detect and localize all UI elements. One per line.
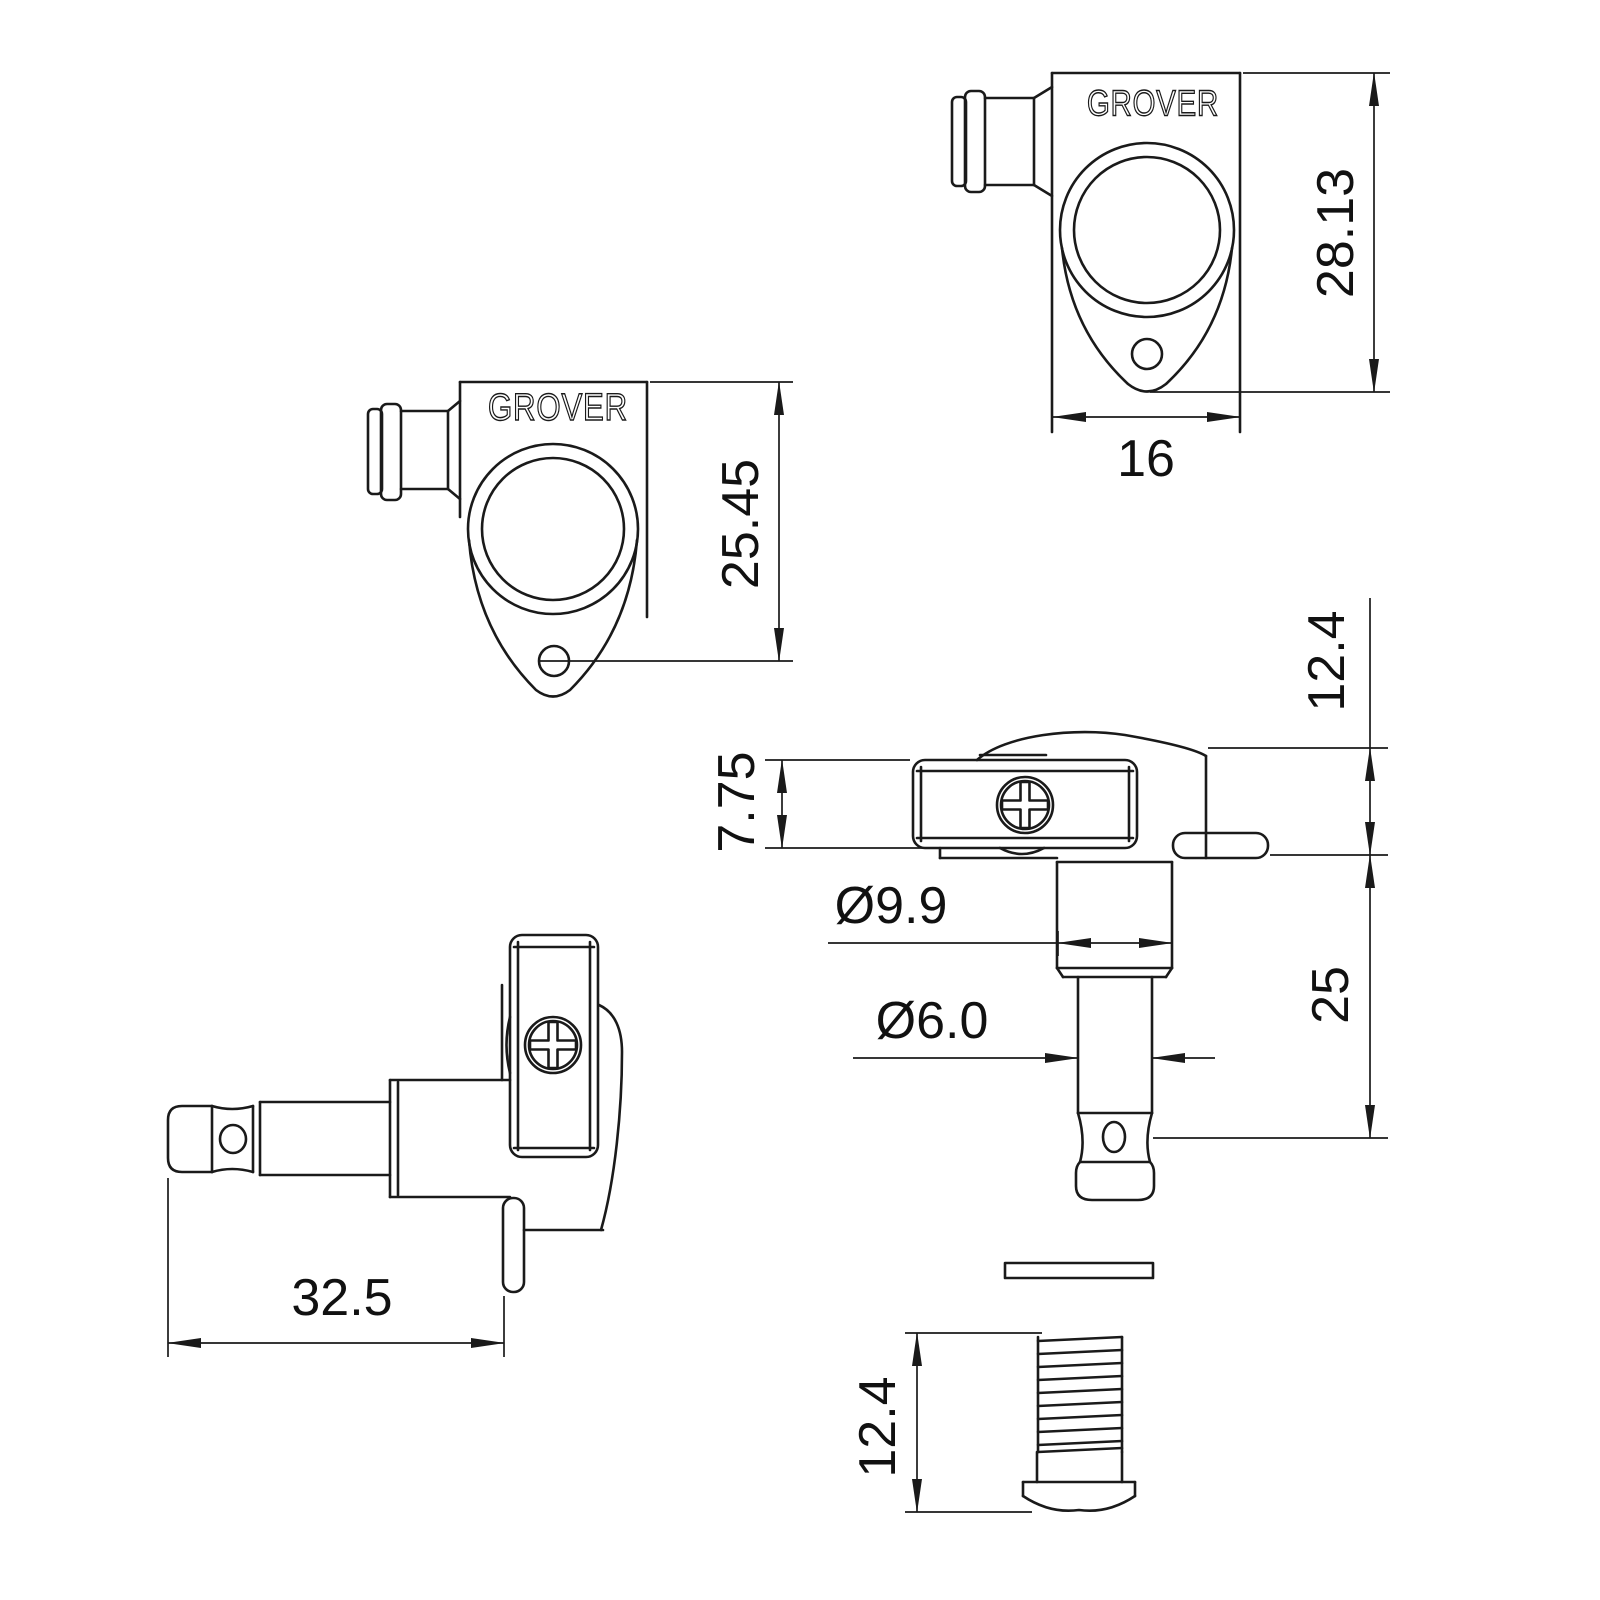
phillips-screw-icon xyxy=(997,777,1053,833)
dim-bushing-height: 12.4 xyxy=(849,1333,1042,1512)
dim-label-height-to-hole: 25.45 xyxy=(712,459,770,589)
dim-label-post-length: 25 xyxy=(1302,966,1360,1024)
technical-drawing-page: GROVER 28.13 16 xyxy=(0,0,1600,1600)
string-hole xyxy=(220,1125,246,1153)
grommet-inner-circle xyxy=(482,458,624,600)
mounting-tab xyxy=(1173,833,1268,858)
dim-housing-height: 12.4 xyxy=(1208,598,1388,855)
housing-side-plate xyxy=(913,760,1137,848)
housing-side-plate xyxy=(510,935,598,1157)
dim-label-post-diameter: Ø6.0 xyxy=(876,992,989,1050)
dim-label-shaft-diameter: Ø9.9 xyxy=(835,877,948,935)
view-side-bottom-left: 32.5 xyxy=(168,935,622,1357)
grommet-outer-circle xyxy=(468,444,638,614)
grover-logo-text: GROVER xyxy=(488,387,628,429)
dim-label-bushing-height: 12.4 xyxy=(849,1376,907,1477)
dim-label-front-width: 16 xyxy=(1117,430,1175,488)
grover-logo-text: GROVER xyxy=(1087,83,1219,124)
dim-label-overall-length: 32.5 xyxy=(291,1269,392,1327)
dim-plate-thickness: 7.75 xyxy=(708,751,935,852)
washer xyxy=(1005,1263,1153,1278)
dim-shaft-diameter: Ø9.9 xyxy=(828,877,1172,956)
string-post-stub xyxy=(368,401,460,500)
view-front-top-right: GROVER 28.13 16 xyxy=(952,73,1390,488)
grommet-inner-circle xyxy=(1074,157,1220,303)
string-post xyxy=(168,1080,510,1197)
dim-front-width: 16 xyxy=(1053,417,1240,488)
tuner-dimension-drawing: GROVER 28.13 16 xyxy=(0,0,1600,1600)
string-post xyxy=(1057,862,1172,1200)
grommet-outer-circle xyxy=(1060,143,1234,317)
phillips-screw-icon xyxy=(525,1017,581,1073)
bushing-flange xyxy=(1023,1452,1135,1511)
dim-label-housing-height: 12.4 xyxy=(1298,610,1356,711)
teardrop-flange xyxy=(469,540,637,697)
view-front-left: GROVER 25.45 xyxy=(368,382,793,697)
dim-post-diameter: Ø6.0 xyxy=(853,992,1215,1058)
dim-label-front-height: 28.13 xyxy=(1307,168,1365,298)
view-side-right: 7.75 Ø9.9 Ø6.0 12.4 25 xyxy=(708,598,1388,1200)
housing-body xyxy=(1052,73,1240,432)
screw-hole xyxy=(1132,339,1162,369)
string-hole xyxy=(1103,1122,1125,1152)
string-post-stub xyxy=(952,87,1052,196)
bushing-threads xyxy=(1038,1337,1122,1452)
dim-label-plate-thickness: 7.75 xyxy=(708,751,766,852)
dim-post-length: 25 xyxy=(1153,855,1388,1138)
gear-housing-dome xyxy=(599,1005,622,1230)
threaded-bushing: 12.4 xyxy=(849,1333,1135,1512)
dim-overall-length: 32.5 xyxy=(168,1178,504,1357)
mounting-tab xyxy=(503,1198,524,1292)
